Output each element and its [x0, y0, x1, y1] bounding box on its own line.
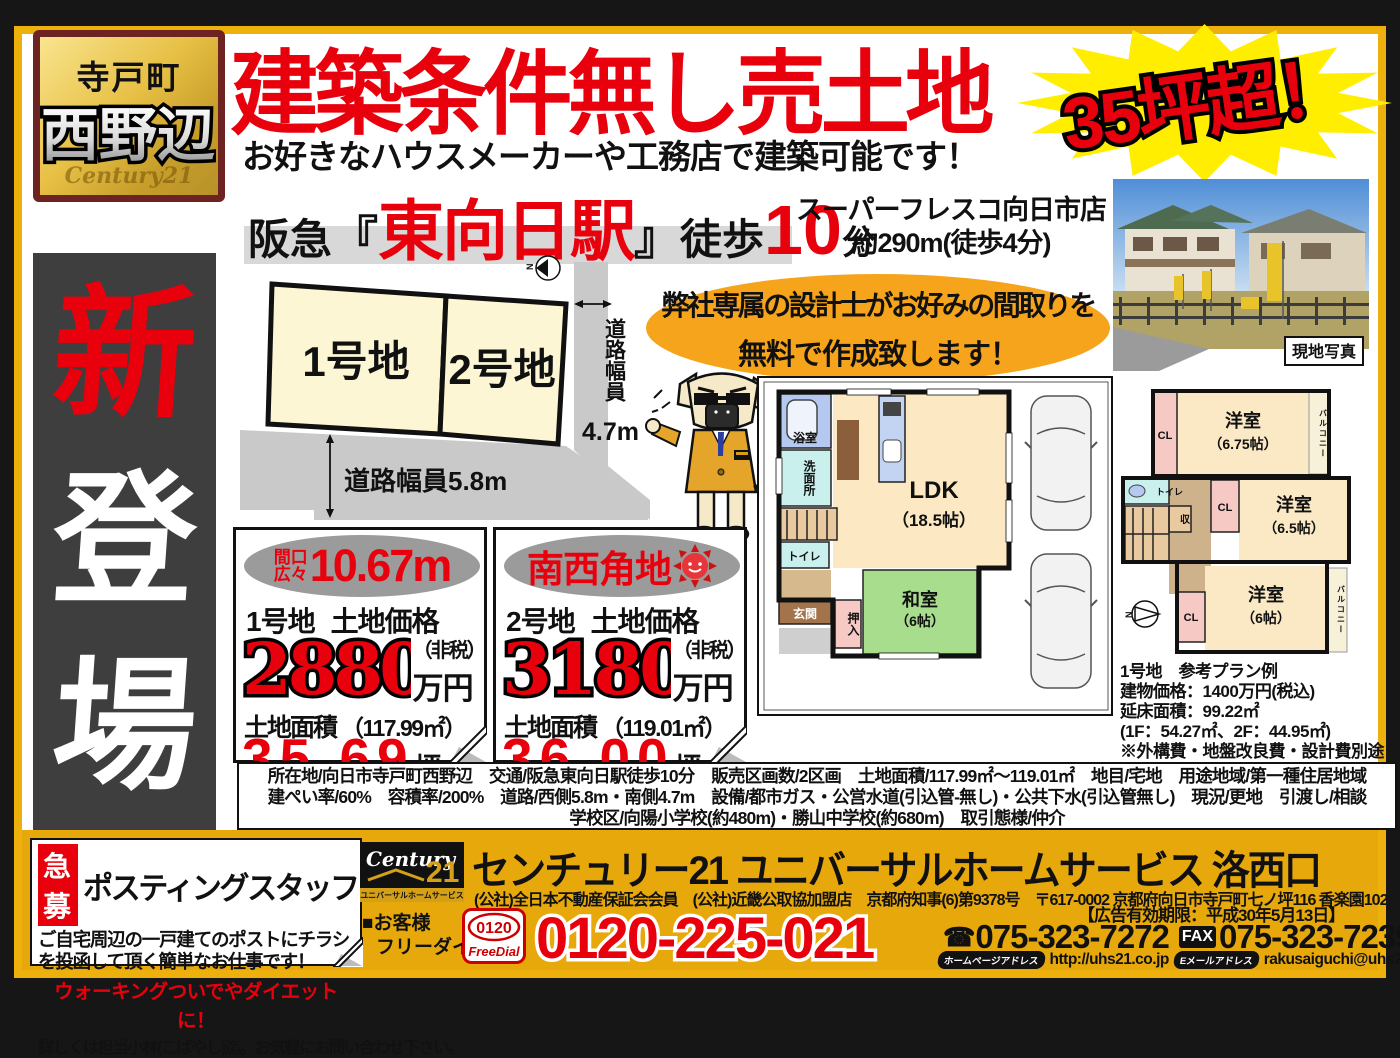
svg-text:（6.5帖）: （6.5帖） [1263, 520, 1324, 536]
recruit-box: 急募 ポスティングスタッフ ご自宅周辺の一戸建てのポストにチラシを投函して頂く簡… [30, 838, 362, 966]
recruit-tag: 急募 [38, 844, 78, 926]
tax-note: （非税） [413, 634, 484, 663]
label-storage: 収 [1180, 514, 1191, 526]
badge-town: 寺戸町 [40, 51, 218, 99]
room-675 [1177, 391, 1309, 476]
fold-corner [333, 937, 363, 967]
label-ldk: LDK [909, 477, 959, 504]
web-email-row: ホームページアドレス http://uhs21.co.jp Eメールアドレス r… [938, 951, 1400, 969]
svg-text:（6帖）: （6帖） [1241, 610, 1291, 626]
logo-roofline [368, 870, 424, 880]
freedial-logo: 0120 FreeDial [462, 908, 526, 964]
frontage-label: 間口 [274, 549, 308, 566]
subtitle: お好きなハウスメーカーや工務店で建築可能です！ [242, 130, 978, 178]
label-entrance: 玄関 [793, 606, 817, 621]
label-room6: 洋室 [1248, 584, 1284, 605]
label-cl: CL [1158, 430, 1173, 442]
recruit-contact: 詳しくは担当小林(こばやし)迄。お気軽にお問い合わせ下さい。 [38, 1034, 354, 1058]
label-oshiire: 押入 [846, 611, 860, 637]
phone-icon: ☎ [943, 922, 975, 953]
fold-corner [449, 725, 487, 763]
century21-logo: Century 21 ユニバーサルホームサービス [360, 842, 464, 902]
recruit-highlight: ウォーキングついでやダイエットに！ [38, 975, 354, 1033]
banner-char: 場 [48, 656, 201, 799]
svg-text:2880: 2880 [242, 628, 411, 710]
svg-text:N: N [525, 264, 535, 271]
century21-watermark: Century21 [40, 163, 218, 189]
starburst-35tsubo: 35坪超！ [1012, 15, 1397, 193]
svg-text:（6帖）: （6帖） [895, 613, 945, 629]
label-cl: CL [1184, 612, 1199, 624]
banner-char: 新 [48, 284, 201, 427]
hallway [779, 570, 831, 598]
new-arrival-banner: 新 登 場 [33, 253, 216, 830]
floorplan-2f: CL 洋室 （6.75帖） バルコニー トイレ 収 CL 洋室 （6.5帖） C… [1117, 379, 1365, 664]
price-card-lot2: 南西角地 2号地土地価格 3180 （非税） 万円 土地面積 （119.01㎡）… [493, 527, 747, 763]
photo-flag [1267, 243, 1282, 301]
supermarket-walk: 約290m(徒歩4分) [795, 227, 1107, 260]
label-room675: 洋室 [1225, 410, 1261, 431]
svg-text:西野辺: 西野辺 [41, 103, 215, 168]
details-line: 建ぺい率/60% 容積率/200% 道路/西側5.8m・南側4.7m 設備/都市… [239, 787, 1395, 808]
room-washitsu [863, 570, 977, 654]
car-icon [1025, 554, 1097, 688]
email-address: rakusaiguchi@uhs21.co.jp [1264, 951, 1400, 969]
corner-lot-label: 南西角地 [527, 539, 671, 593]
price-unit: 万円 [673, 663, 744, 708]
photo-caption: 現地写真 [1292, 342, 1356, 361]
road-south-label: 道路幅員5.8m [344, 466, 507, 496]
recruit-title: ポスティングスタッフ [83, 863, 358, 908]
lot2-label: 2号地 [448, 346, 555, 393]
photo-flag [1174, 276, 1183, 300]
compass-icon: N [1124, 601, 1159, 627]
sun-icon [673, 544, 717, 588]
supermarket-name: スーパーフレスコ向日市店 [795, 194, 1107, 227]
price-card-lot1: 間口 広々 10.67m 1号地土地価格 2880 （非税） 万円 土地面積 （… [233, 527, 487, 763]
supermarket-distance: スーパーフレスコ向日市店 約290m(徒歩4分) [795, 194, 1107, 260]
label-room65: 洋室 [1276, 494, 1312, 515]
badge-area-outlined-text: 西野辺 [40, 99, 216, 173]
kitchen-cabinet [837, 420, 859, 480]
recruit-body: ご自宅周辺の一戸建てのポストにチラシを投函して頂く簡単なお仕事です！ [38, 929, 354, 973]
road-east-width: 4.7m [582, 418, 639, 446]
property-details: 所在地/向日市寺戸町西野辺 交通/阪急東向日駅徒歩10分 販売区画数/2区画 土… [237, 762, 1397, 830]
website-url: http://uhs21.co.jp [1050, 951, 1169, 969]
tax-note: （非税） [673, 634, 744, 663]
label-balcony: バルコニー [1337, 585, 1346, 635]
logo-subtext: ユニバーサルホームサービス [360, 890, 464, 900]
photo-flag [1202, 271, 1211, 299]
mascot-muzzle [706, 404, 738, 428]
plan-note-line: (1F：54.27㎡、2F：44.95㎡) [1120, 722, 1398, 742]
label-washroom: 洗面所 [802, 459, 816, 497]
mascot-motion-lines [652, 390, 670, 412]
lot1-label: 1号地 [302, 338, 409, 385]
label-balcony: バルコニー [1319, 409, 1328, 459]
corner-lot-badge: 南西角地 [504, 535, 740, 597]
svg-text:3180: 3180 [502, 628, 671, 710]
frontage-badge: 間口 広々 10.67m [244, 535, 480, 597]
website-label: ホームページアドレス [937, 951, 1046, 969]
details-line: 学校区/向陽小学校(約480m)・勝山中学校(約680m) 取引態様/仲介 [239, 808, 1395, 829]
freedial-text: FreeDial [468, 944, 520, 959]
svg-text:N: N [1124, 612, 1134, 619]
label-toilet-2f: トイレ [1156, 487, 1183, 497]
price-amount-outlined: 2880 [240, 628, 411, 710]
porch [779, 628, 833, 654]
plan-note-line: 建物価格：1400万円(税込) [1120, 682, 1398, 702]
promo-line1: 弊社専属の設計士がお好みの間取りを [596, 284, 1160, 324]
mascot-tie [718, 432, 724, 456]
fax-label: FAX [1179, 926, 1216, 948]
compass-icon: N [525, 256, 560, 280]
mascot-dog-icon [642, 362, 774, 544]
label-cl: CL [1218, 502, 1233, 514]
promo-message: 弊社専属の設計士がお好みの間取りを 無料で作成致します！ [596, 284, 1160, 373]
car-icon [1025, 396, 1097, 530]
svg-text:0120-225-021: 0120-225-021 [536, 906, 874, 971]
location-badge: 寺戸町 西野辺 Century21 [33, 30, 225, 202]
fold-corner [709, 725, 747, 763]
label-bath: 浴室 [793, 430, 817, 445]
floorplan-1f: 浴室 洗面所 トイレ 玄関 押入 和室 （6帖） LDK （18.5帖） [757, 376, 1113, 716]
main-phone-number: 0120-225-021 [532, 903, 952, 973]
plan-note-line: 延床面積：99.22㎡ [1120, 702, 1398, 722]
freedial-0120: 0120 [476, 920, 512, 937]
photo-right-house [1249, 233, 1365, 293]
label-washitsu: 和室 [902, 589, 938, 610]
banner-char: 登 [48, 470, 201, 613]
toilet-icon [1129, 485, 1145, 497]
price-amount-outlined: 3180 [500, 628, 671, 710]
walk-label: 徒歩 [680, 206, 764, 267]
svg-text:（18.5帖）: （18.5帖） [892, 510, 976, 530]
logo-21: 21 [426, 856, 459, 889]
email-label: Eメールアドレス [1173, 951, 1260, 969]
room-6 [1205, 566, 1327, 652]
plan-note-line: 1号地 参考プラン例 [1120, 662, 1398, 682]
price-unit: 万円 [413, 663, 484, 708]
frontage-value: 10.67m [310, 540, 451, 592]
details-line: 所在地/向日市寺戸町西野辺 交通/阪急東向日駅徒歩10分 販売区画数/2区画 土… [239, 766, 1395, 787]
svg-text:（6.75帖）: （6.75帖） [1208, 436, 1277, 452]
label-toilet: トイレ [788, 550, 821, 563]
